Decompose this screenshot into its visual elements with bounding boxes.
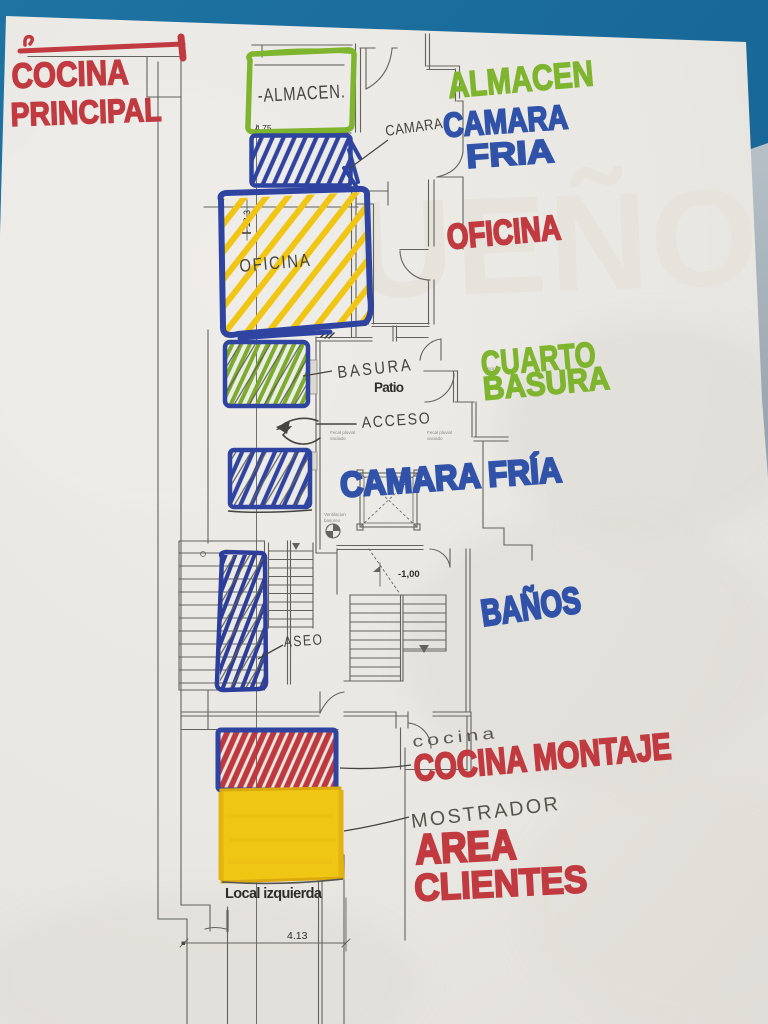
- svg-text:Fecal pluvial: Fecal pluvial: [330, 430, 355, 435]
- svg-text:Local izquierda: Local izquierda: [225, 886, 323, 902]
- svg-text:ASEO: ASEO: [283, 631, 324, 651]
- svg-text:Patio: Patio: [374, 380, 404, 395]
- svg-text:-1,00: -1,00: [398, 569, 420, 580]
- svg-text:basureo: basureo: [324, 518, 341, 523]
- svg-text:COCINA: COCINA: [11, 53, 129, 96]
- svg-text:PRINCIPAL: PRINCIPAL: [10, 91, 162, 133]
- svg-text:vaciado: vaciado: [427, 436, 443, 441]
- svg-text:4.13: 4.13: [287, 930, 308, 942]
- svg-text:Fecal pluvial: Fecal pluvial: [427, 430, 452, 435]
- svg-text:vaciado: vaciado: [330, 436, 346, 441]
- svg-text:Ventilacion: Ventilacion: [324, 512, 346, 517]
- svg-text:FRIA: FRIA: [465, 132, 555, 175]
